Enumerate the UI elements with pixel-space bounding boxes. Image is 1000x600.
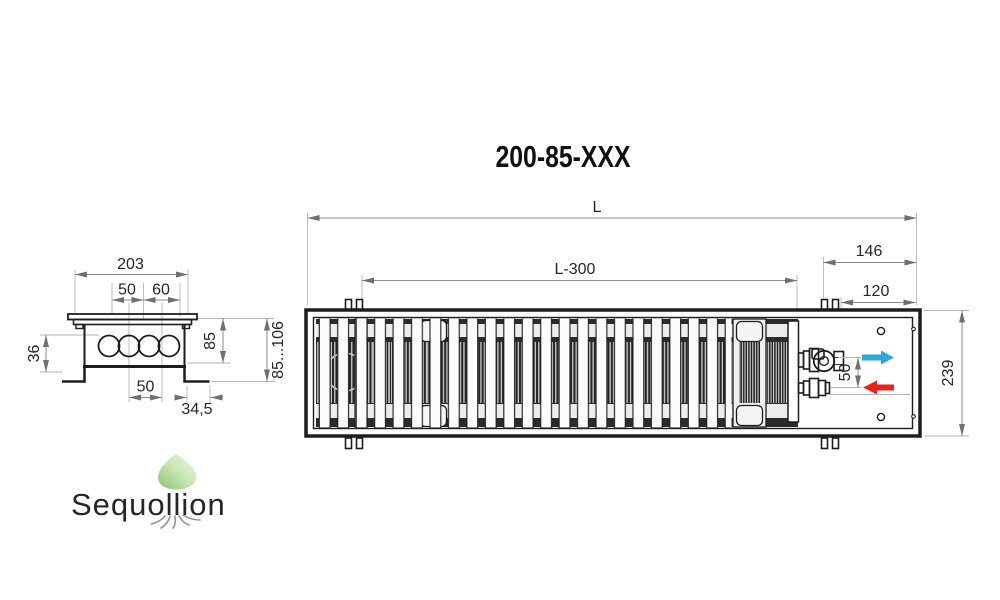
screw-hole	[877, 327, 884, 334]
mount-tab	[833, 438, 839, 449]
top-view: 50 L L-300 146 120 239	[306, 199, 969, 449]
dim-grille-length-label: L-300	[555, 261, 596, 278]
grille-frame-top	[68, 314, 197, 320]
frame-foot-left	[76, 325, 83, 329]
drawing-page: 200-85-XXX	[0, 0, 1000, 600]
dim-bottom-spacing-label: 50	[137, 379, 155, 396]
dim-end-section-label: 146	[856, 243, 883, 260]
frame-hole	[912, 415, 916, 419]
screw-hole	[877, 413, 884, 420]
dim-foot-label: 34,5	[181, 401, 212, 418]
dim-height-body-label: 85	[202, 332, 219, 350]
technical-drawing: 200-85-XXX	[0, 0, 1000, 600]
exchanger-end-fins	[739, 342, 760, 403]
frame-hole	[912, 327, 916, 331]
mount-tab	[822, 438, 828, 449]
grille-slats	[316, 319, 732, 429]
mount-bracket-right	[185, 367, 210, 382]
dim-width-top-label: 203	[117, 256, 144, 273]
dim-width-label: 239	[940, 360, 957, 387]
dim-inner-left-label: 50	[118, 282, 136, 299]
side-view: 203 50 60 36 85 85...106 50 34,5	[26, 256, 287, 418]
tube-bracket	[737, 322, 763, 342]
brand-name: Sequollion	[71, 487, 226, 522]
dim-height-adjustable-label: 85...106	[270, 321, 287, 379]
heat-pipe-circle	[99, 336, 120, 357]
dim-height-left-label: 36	[26, 345, 43, 363]
end-plate	[788, 321, 799, 422]
tube-bracket	[737, 406, 763, 426]
page-title: 200-85-XXX	[495, 139, 630, 173]
grille-frame-step	[74, 320, 192, 325]
heat-pipe-circle	[139, 336, 160, 357]
brand-watermark: Sequollion	[71, 454, 226, 529]
mount-tab	[346, 438, 352, 449]
convector-top-body	[306, 300, 920, 449]
dim-connection-label: 120	[863, 283, 890, 300]
dim-inner-right-label: 60	[152, 282, 170, 299]
fin-pack-fins	[768, 342, 788, 403]
dim-length-label: L	[593, 199, 602, 216]
mount-bracket-left	[62, 367, 85, 382]
convector-section-body	[62, 314, 210, 382]
tree-crown-icon	[158, 454, 197, 490]
mount-tab	[357, 438, 363, 449]
dim-pipe-spacing-label: 50	[837, 364, 854, 382]
